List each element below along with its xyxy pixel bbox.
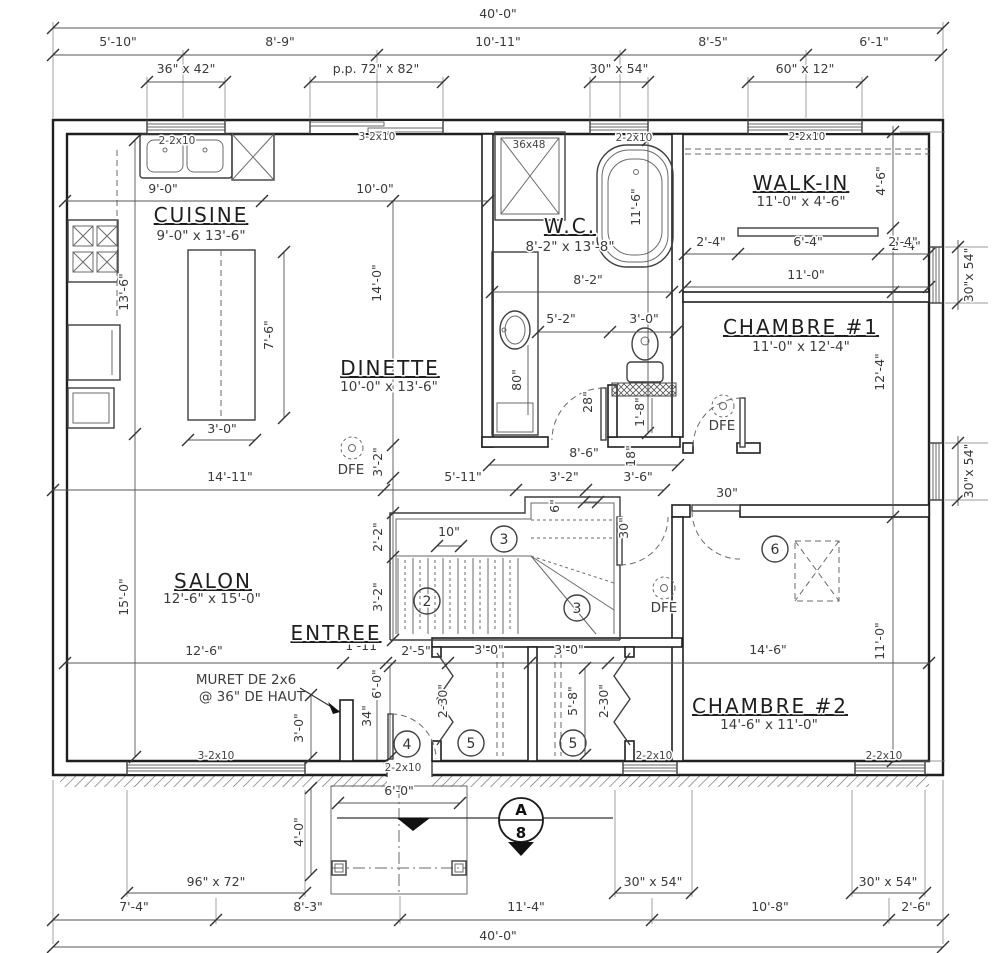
muret-half-wall xyxy=(340,700,353,761)
window-size-label: 36" x 42" xyxy=(157,61,216,76)
dim-label: 8'-9" xyxy=(265,34,295,49)
window-salon xyxy=(127,761,305,775)
window-size-label: 30"x 54" xyxy=(961,248,976,303)
room-name-salon: SALON xyxy=(174,569,252,593)
marker-label: 4 xyxy=(403,737,412,753)
dim-label: 8'-3" xyxy=(293,899,323,914)
window-kitchen xyxy=(147,120,225,134)
dfe-label: DFE xyxy=(651,600,678,616)
window-size-label: 30" x 54" xyxy=(624,874,683,889)
dim-label: 40'-0" xyxy=(479,6,517,21)
dim-label: 1'-8" xyxy=(632,397,647,427)
muret-note-line1: MURET DE 2x6 xyxy=(196,672,296,688)
room-name-chambre2: CHAMBRE #2 xyxy=(692,694,848,718)
dim-label: 11'-6" xyxy=(628,188,643,226)
room-name-walkin: WALK-IN xyxy=(753,171,850,195)
dim-label: 8'-5" xyxy=(698,34,728,49)
marker-label: 3 xyxy=(573,601,582,617)
door-size-label: 30" xyxy=(716,485,738,500)
lintel-label: 2-2x10 xyxy=(636,750,673,762)
dim-label: 10'-11" xyxy=(475,34,521,49)
dim-label: 5'-10" xyxy=(99,34,137,49)
window-size-label: 30" x 54" xyxy=(859,874,918,889)
muret-note-line2: @ 36" DE HAUT xyxy=(199,689,306,705)
dim-label: 14'-0" xyxy=(369,264,384,302)
lintel-label: 2-2x10 xyxy=(866,750,903,762)
room-size-chambre1: 11'-0" x 12'-4" xyxy=(752,339,850,355)
fixture-size-label: 36x48 xyxy=(513,139,546,151)
door-size-label: 30" xyxy=(616,517,631,539)
foundation-hatching xyxy=(60,776,929,787)
dim-label: 11'-0" xyxy=(872,622,887,660)
dim-label: 7'-4" xyxy=(119,899,149,914)
lintel-label: 3-2x10 xyxy=(359,131,396,143)
dim-label: 5'-11" xyxy=(444,469,482,484)
dim-label: 10" xyxy=(438,524,460,539)
window-size-label: 96" x 72" xyxy=(187,874,246,889)
lintel-label: 2-2x10 xyxy=(789,131,826,143)
room-size-chambre2: 14'-6" x 11'-0" xyxy=(720,717,818,733)
dim-label: 6'-4" xyxy=(793,234,823,249)
dim-label: 3'-0" xyxy=(629,311,659,326)
paper-background xyxy=(0,0,997,953)
dim-label: 2'-5" xyxy=(401,643,431,658)
dim-label: 6'-1" xyxy=(859,34,889,49)
dim-label: 8'-2" xyxy=(573,272,603,287)
marker-label: 5 xyxy=(467,736,476,752)
dim-label: 10'-0" xyxy=(356,181,394,196)
room-name-chambre1: CHAMBRE #1 xyxy=(723,315,879,339)
room-name-cuisine: CUISINE xyxy=(154,203,249,227)
dim-label: 3'-2" xyxy=(370,447,385,477)
dim-label: 3'-0" xyxy=(554,642,584,657)
window-chambre2-side xyxy=(929,443,943,500)
room-size-cuisine: 9'-0" x 13'-6" xyxy=(156,228,245,244)
dim-label: 2'-4" xyxy=(696,234,726,249)
dfe-label: DFE xyxy=(338,462,365,478)
section-sheet: 8 xyxy=(516,824,526,842)
dim-label: 2'-6" xyxy=(901,899,931,914)
marker-label: 3 xyxy=(500,532,509,548)
dim-label: 12'-4" xyxy=(872,353,887,391)
window-size-label: 60" x 12" xyxy=(776,61,835,76)
dim-label: 2'-2" xyxy=(370,522,385,552)
marker-label: 5 xyxy=(569,736,578,752)
door-size-label: 2-30" xyxy=(435,684,450,718)
lintel-label: 3-2x10 xyxy=(198,750,235,762)
dim-label: 3'-0" xyxy=(291,713,306,743)
dim-label: 18" xyxy=(623,445,638,467)
marker-label: 2 xyxy=(423,594,432,610)
lintel-label: 2-2x10 xyxy=(616,132,653,144)
dim-label: 4'-0" xyxy=(291,817,306,847)
lintel-label: 2-2x10 xyxy=(385,762,422,774)
dim-label: 6'-0" xyxy=(369,669,384,699)
room-name-wc: W.C. xyxy=(544,214,596,238)
dim-label: 14'-11" xyxy=(207,469,253,484)
door-size-label: 2-30" xyxy=(596,684,611,718)
dim-label: 3'-0" xyxy=(207,421,237,436)
dim-label: 6" xyxy=(547,499,562,513)
dim-label: 3'-2" xyxy=(370,582,385,612)
window-size-label: p.p. 72" x 82" xyxy=(333,61,419,76)
window-chambre2-left xyxy=(623,761,677,775)
window-size-label: 30" x 54" xyxy=(590,61,649,76)
dim-label: 3'-6" xyxy=(623,469,653,484)
window-chambre1 xyxy=(929,247,943,303)
linen-shelf xyxy=(612,383,676,396)
door-size-label: 34" xyxy=(359,705,374,727)
marker-label: 6 xyxy=(771,542,780,558)
dim-label: 7'-6" xyxy=(261,320,276,350)
dim-label: 2'-4" xyxy=(888,234,918,249)
room-name-dinette: DINETTE xyxy=(340,356,440,380)
lintel-label: 2-2x10 xyxy=(159,135,196,147)
room-name-entree: ENTREE xyxy=(291,621,382,645)
dim-label: 13'-6" xyxy=(116,273,131,311)
dim-label: 11'-4" xyxy=(507,899,545,914)
dim-label: 8'-6" xyxy=(569,445,599,460)
floor-plan-page: A 8 DFE DFE DFE 2 3 3 4 5 5 6 xyxy=(0,0,997,953)
room-size-dinette: 10'-0" x 13'-6" xyxy=(340,379,438,395)
room-size-wc: 8'-2" x 13'-8" xyxy=(525,239,614,255)
dim-label: 40'-0" xyxy=(479,928,517,943)
dfe-label: DFE xyxy=(709,418,736,434)
dim-label: 12'-6" xyxy=(185,643,223,658)
dim-label: 4'-6" xyxy=(873,166,888,196)
dim-label: 15'-0" xyxy=(116,578,131,616)
room-size-salon: 12'-6" x 15'-0" xyxy=(163,591,261,607)
dim-label: 6'-0" xyxy=(384,783,414,798)
dim-label: 5'-2" xyxy=(546,311,576,326)
dim-label: 14'-6" xyxy=(749,642,787,657)
dim-label: 3'-0" xyxy=(474,642,504,657)
dim-label: 3'-2" xyxy=(549,469,579,484)
window-size-label: 30"x 54" xyxy=(961,444,976,499)
door-size-label: 28" xyxy=(580,391,595,413)
dim-label: 80" xyxy=(509,369,524,391)
dim-label: 5'-8" xyxy=(565,686,580,716)
dim-label: 11'-0" xyxy=(787,267,825,282)
floor-plan-drawing: A 8 DFE DFE DFE 2 3 3 4 5 5 6 xyxy=(0,0,997,953)
dim-label: 9'-0" xyxy=(148,181,178,196)
section-letter: A xyxy=(515,801,527,819)
room-size-walkin: 11'-0" x 4'-6" xyxy=(756,194,845,210)
dim-label: 10'-8" xyxy=(751,899,789,914)
